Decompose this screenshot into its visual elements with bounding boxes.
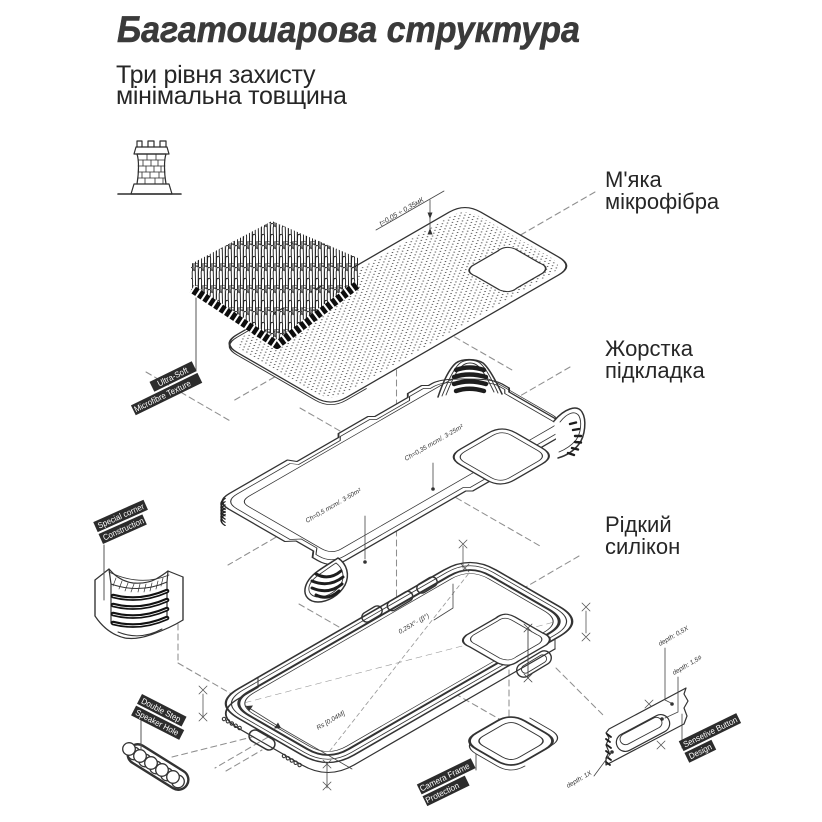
svg-text:depth: 1X: depth: 1X [566,769,594,789]
svg-text:depth: 0,5X: depth: 0,5X [658,625,691,648]
svg-text:t=0,05 ÷ 0,35мК: t=0,05 ÷ 0,35мК [379,196,427,227]
svg-text:depth: 1,5#: depth: 1,5# [672,654,704,677]
